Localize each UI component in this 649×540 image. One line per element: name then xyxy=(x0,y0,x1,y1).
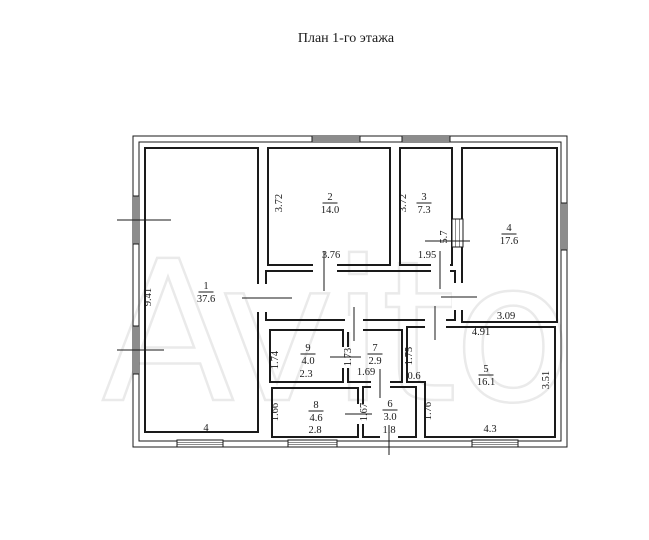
dimension-label: 3.76 xyxy=(322,250,340,261)
dimension-label: 1.73 xyxy=(343,348,354,366)
dimension-label: 1.74 xyxy=(270,350,281,369)
dimension-label: 4 xyxy=(203,423,209,434)
dimension-label: 1.76 xyxy=(423,402,434,420)
window-blank xyxy=(312,136,360,142)
room-4-area: 17.6 xyxy=(500,236,518,247)
dimension-label: 1.67 xyxy=(359,403,370,421)
dimension-label: 4.3 xyxy=(483,424,496,435)
room-2-number: 2 xyxy=(327,192,332,203)
window-blank xyxy=(177,440,223,447)
window-blank xyxy=(561,203,567,250)
dimension-label: 1.69 xyxy=(357,367,375,378)
dimension-label: 3.72 xyxy=(274,194,285,212)
dimension-label: 1.95 xyxy=(418,250,436,261)
room-1-area: 37.6 xyxy=(197,294,215,305)
dimension-label: 1.66 xyxy=(270,403,281,421)
dimension-label: 0.6 xyxy=(407,371,420,382)
room-7-number: 7 xyxy=(372,343,377,354)
room-3-number: 3 xyxy=(421,192,426,203)
floorplan-page: Avito План 1-го этажа 137.6214.037.3417.… xyxy=(0,0,649,540)
room-6-number: 6 xyxy=(387,399,392,410)
dimension-label: 3.51 xyxy=(541,371,552,389)
dimension-label: 2.3 xyxy=(299,369,312,380)
window-blank xyxy=(288,440,337,447)
plan-title: План 1-го этажа xyxy=(298,31,395,46)
dimension-label: 2.8 xyxy=(308,425,321,436)
room-1-number: 1 xyxy=(203,281,208,292)
room-9-area: 4.0 xyxy=(301,356,314,367)
door-room2-corridor-opening xyxy=(313,261,337,275)
dimension-label: 1.8 xyxy=(382,425,395,436)
dimension-label: 3.09 xyxy=(497,311,515,322)
window-blank xyxy=(452,219,463,247)
window-blank xyxy=(402,136,450,142)
dimension-label: 1.75 xyxy=(404,347,415,365)
dimension-label: 5.7 xyxy=(439,230,450,243)
room-3-area: 7.3 xyxy=(417,205,430,216)
room-8-area: 4.6 xyxy=(309,413,322,424)
room-9-number: 9 xyxy=(305,343,310,354)
room-5-number: 5 xyxy=(483,364,488,375)
dimension-label: 4.91 xyxy=(472,327,490,338)
floor-plan-svg: Avito План 1-го этажа 137.6214.037.3417.… xyxy=(0,0,649,540)
room-8-number: 8 xyxy=(313,400,318,411)
dimension-label: 9.41 xyxy=(143,288,154,306)
window-blank xyxy=(472,440,518,447)
room-6-area: 3.0 xyxy=(383,412,396,423)
room-2-area: 14.0 xyxy=(321,205,339,216)
dimension-label: 3.72 xyxy=(398,194,409,212)
room-4-number: 4 xyxy=(506,223,512,234)
room-7-area: 2.9 xyxy=(368,356,381,367)
room-5-area: 16.1 xyxy=(477,377,495,388)
